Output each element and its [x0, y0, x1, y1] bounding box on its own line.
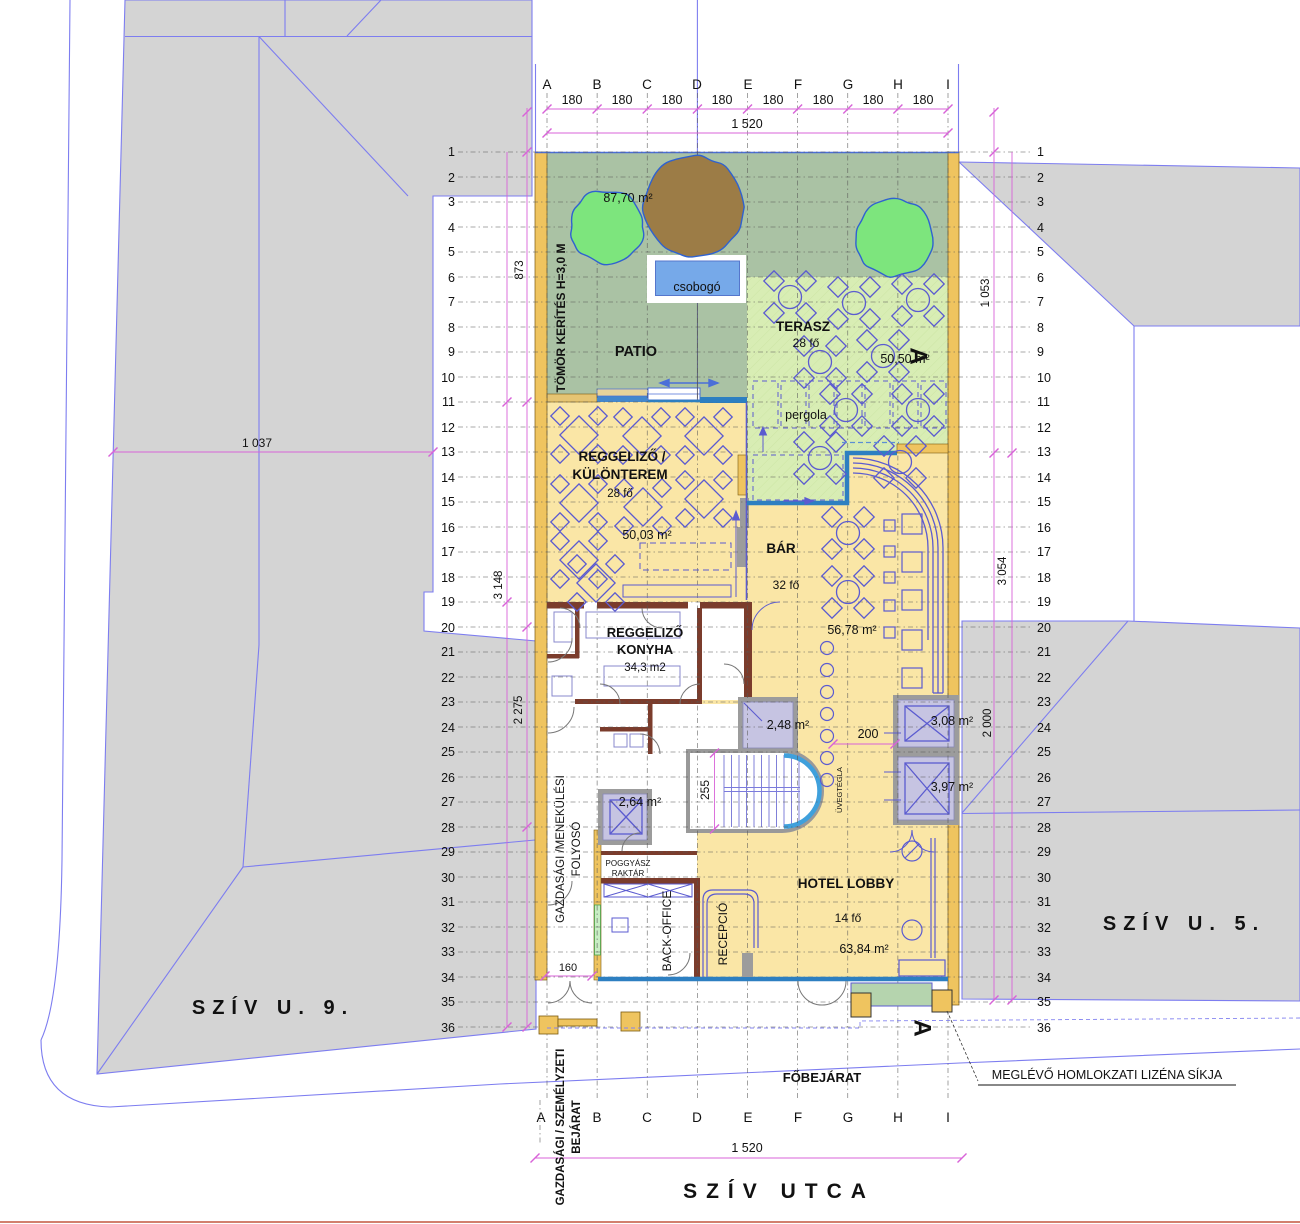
svg-text:15: 15: [441, 495, 455, 509]
svg-text:2: 2: [448, 171, 455, 185]
svg-text:1 520: 1 520: [731, 117, 762, 131]
svg-text:24: 24: [441, 721, 455, 735]
svg-text:36: 36: [441, 1021, 455, 1035]
svg-text:2 000: 2 000: [982, 709, 994, 738]
svg-text:180: 180: [913, 93, 934, 107]
svg-text:TÖMÖR KERÍTÉS H=3,0 M: TÖMÖR KERÍTÉS H=3,0 M: [553, 243, 568, 392]
svg-text:29: 29: [441, 845, 455, 859]
svg-text:4: 4: [1037, 221, 1044, 235]
svg-text:50,50 m²: 50,50 m²: [880, 352, 929, 366]
svg-text:20: 20: [1037, 621, 1051, 635]
svg-text:32: 32: [441, 921, 455, 935]
svg-text:28: 28: [441, 821, 455, 835]
svg-text:H: H: [893, 1110, 903, 1125]
svg-text:180: 180: [763, 93, 784, 107]
svg-text:9: 9: [448, 345, 455, 359]
svg-text:14: 14: [441, 471, 455, 485]
svg-text:1 053: 1 053: [980, 279, 992, 308]
svg-text:ÜVEGTÉGLA: ÜVEGTÉGLA: [835, 767, 844, 813]
svg-text:33: 33: [441, 945, 455, 959]
svg-text:17: 17: [1037, 545, 1051, 559]
svg-text:23: 23: [441, 695, 455, 709]
svg-text:2: 2: [1037, 171, 1044, 185]
svg-text:22: 22: [441, 671, 455, 685]
svg-text:I: I: [946, 1110, 950, 1125]
svg-text:GAZDASÁGI / SZEMÉLYZETI: GAZDASÁGI / SZEMÉLYZETI: [554, 1049, 567, 1206]
svg-text:G: G: [843, 1110, 854, 1125]
svg-text:180: 180: [863, 93, 884, 107]
svg-text:SZÍV UTCA: SZÍV UTCA: [683, 1180, 875, 1203]
svg-text:36: 36: [1037, 1021, 1051, 1035]
svg-text:H: H: [893, 77, 903, 92]
svg-text:23: 23: [1037, 695, 1051, 709]
svg-text:21: 21: [1037, 645, 1051, 659]
svg-text:7: 7: [448, 295, 455, 309]
svg-text:PATIO: PATIO: [615, 344, 657, 360]
svg-text:GAZDASÁGI /MENEKÜLÉSI: GAZDASÁGI /MENEKÜLÉSI: [554, 775, 567, 923]
svg-text:A: A: [542, 77, 551, 92]
svg-text:28: 28: [1037, 821, 1051, 835]
svg-text:D: D: [692, 1110, 702, 1125]
svg-text:KONYHA: KONYHA: [617, 642, 674, 657]
svg-text:RAKTÁR: RAKTÁR: [612, 869, 645, 878]
svg-text:FŐBEJÁRAT: FŐBEJÁRAT: [783, 1070, 862, 1085]
svg-text:25: 25: [1037, 745, 1051, 759]
svg-text:1 520: 1 520: [731, 1141, 762, 1155]
svg-text:1: 1: [448, 145, 455, 159]
svg-text:BÁR: BÁR: [766, 541, 795, 556]
svg-text:180: 180: [712, 93, 733, 107]
svg-text:200: 200: [858, 727, 879, 741]
svg-text:I: I: [946, 77, 950, 92]
svg-text:D: D: [692, 77, 702, 92]
svg-text:34: 34: [441, 971, 455, 985]
svg-text:MEGLÉVŐ HOMLOKZATI LIZÉNA SÍKJ: MEGLÉVŐ HOMLOKZATI LIZÉNA SÍKJA: [992, 1067, 1223, 1082]
svg-text:63,84 m²: 63,84 m²: [839, 942, 888, 956]
svg-text:8: 8: [448, 321, 455, 335]
svg-text:30: 30: [441, 871, 455, 885]
svg-text:3,97 m²: 3,97 m²: [931, 780, 973, 794]
svg-text:F: F: [794, 77, 802, 92]
svg-text:35: 35: [1037, 995, 1051, 1009]
svg-text:REGGELIZŐ: REGGELIZŐ: [607, 625, 684, 640]
svg-text:31: 31: [1037, 895, 1051, 909]
svg-text:26: 26: [441, 771, 455, 785]
svg-text:27: 27: [1037, 795, 1051, 809]
svg-text:19: 19: [1037, 595, 1051, 609]
svg-text:RECEPCIÓ: RECEPCIÓ: [715, 903, 730, 966]
svg-text:31: 31: [441, 895, 455, 909]
svg-text:22: 22: [1037, 671, 1051, 685]
svg-text:E: E: [743, 77, 752, 92]
svg-text:13: 13: [1037, 445, 1051, 459]
svg-text:9: 9: [1037, 345, 1044, 359]
svg-text:10: 10: [1037, 371, 1051, 385]
svg-text:16: 16: [1037, 521, 1051, 535]
svg-text:16: 16: [441, 521, 455, 535]
svg-text:32: 32: [1037, 921, 1051, 935]
svg-text:3: 3: [448, 195, 455, 209]
svg-text:HOTEL LOBBY: HOTEL LOBBY: [798, 876, 895, 891]
svg-text:E: E: [743, 1110, 752, 1125]
svg-text:5: 5: [1037, 245, 1044, 259]
svg-text:26: 26: [1037, 771, 1051, 785]
svg-text:14: 14: [1037, 471, 1051, 485]
svg-text:29: 29: [1037, 845, 1051, 859]
svg-text:B: B: [592, 77, 601, 92]
svg-text:180: 180: [813, 93, 834, 107]
svg-text:C: C: [642, 1110, 652, 1125]
svg-text:18: 18: [1037, 571, 1051, 585]
svg-text:10: 10: [441, 371, 455, 385]
svg-text:2 275: 2 275: [513, 696, 525, 725]
svg-text:160: 160: [559, 962, 577, 974]
svg-text:21: 21: [441, 645, 455, 659]
svg-text:180: 180: [612, 93, 633, 107]
svg-text:873: 873: [514, 260, 526, 279]
svg-text:11: 11: [1037, 395, 1050, 409]
svg-text:180: 180: [662, 93, 683, 107]
svg-text:BEJÁRAT: BEJÁRAT: [570, 1100, 583, 1153]
svg-text:csobogó: csobogó: [673, 280, 720, 294]
svg-text:B: B: [592, 1110, 601, 1125]
svg-text:6: 6: [448, 271, 455, 285]
svg-text:19: 19: [441, 595, 455, 609]
svg-text:SZÍV U. 5.: SZÍV U. 5.: [1103, 912, 1265, 935]
svg-text:KÜLÖNTEREM: KÜLÖNTEREM: [572, 467, 667, 482]
svg-text:5: 5: [448, 245, 455, 259]
svg-text:20: 20: [441, 621, 455, 635]
svg-text:255: 255: [698, 780, 712, 800]
svg-text:F: F: [794, 1110, 802, 1125]
svg-text:4: 4: [448, 221, 455, 235]
svg-text:TERASZ: TERASZ: [776, 319, 830, 334]
svg-text:28 fő: 28 fő: [793, 336, 820, 350]
svg-text:3 148: 3 148: [493, 571, 505, 600]
svg-text:12: 12: [441, 421, 455, 435]
svg-text:3: 3: [1037, 195, 1044, 209]
svg-text:30: 30: [1037, 871, 1051, 885]
svg-text:REGGELIZŐ /: REGGELIZŐ /: [578, 449, 665, 464]
svg-text:18: 18: [441, 571, 455, 585]
svg-text:27: 27: [441, 795, 455, 809]
svg-text:56,78 m²: 56,78 m²: [827, 623, 876, 637]
svg-text:BACK-OFFICE: BACK-OFFICE: [660, 891, 674, 972]
svg-text:POGGYÁSZ: POGGYÁSZ: [606, 859, 651, 868]
svg-text:25: 25: [441, 745, 455, 759]
svg-text:7: 7: [1037, 295, 1044, 309]
svg-text:15: 15: [1037, 495, 1051, 509]
svg-text:32 fő: 32 fő: [773, 578, 800, 592]
svg-text:G: G: [843, 77, 854, 92]
svg-text:11: 11: [442, 395, 455, 409]
svg-text:6: 6: [1037, 271, 1044, 285]
svg-text:FOLYOSÓ: FOLYOSÓ: [570, 822, 583, 877]
svg-text:13: 13: [441, 445, 455, 459]
svg-text:34,3 m2: 34,3 m2: [624, 662, 666, 674]
svg-text:3,08 m²: 3,08 m²: [931, 714, 973, 728]
svg-text:24: 24: [1037, 721, 1051, 735]
svg-text:2,64 m²: 2,64 m²: [619, 795, 661, 809]
svg-text:34: 34: [1037, 971, 1051, 985]
svg-text:1 037: 1 037: [242, 436, 272, 450]
svg-text:35: 35: [441, 995, 455, 1009]
svg-text:A: A: [536, 1110, 545, 1125]
svg-text:1: 1: [1037, 145, 1044, 159]
svg-text:28 fő: 28 fő: [607, 488, 633, 500]
svg-text:SZÍV U. 9.: SZÍV U. 9.: [192, 996, 354, 1019]
svg-text:C: C: [642, 77, 652, 92]
svg-text:3 054: 3 054: [997, 556, 1009, 585]
svg-text:180: 180: [562, 93, 583, 107]
svg-text:A: A: [909, 1019, 936, 1036]
svg-text:8: 8: [1037, 321, 1044, 335]
svg-text:33: 33: [1037, 945, 1051, 959]
svg-text:50,03 m²: 50,03 m²: [622, 528, 671, 542]
svg-text:12: 12: [1037, 421, 1051, 435]
svg-text:17: 17: [441, 545, 455, 559]
svg-text:87,70 m²: 87,70 m²: [603, 191, 652, 205]
svg-text:14 fő: 14 fő: [835, 911, 862, 925]
svg-text:2,48 m²: 2,48 m²: [767, 718, 809, 732]
svg-text:pergola: pergola: [785, 408, 827, 422]
